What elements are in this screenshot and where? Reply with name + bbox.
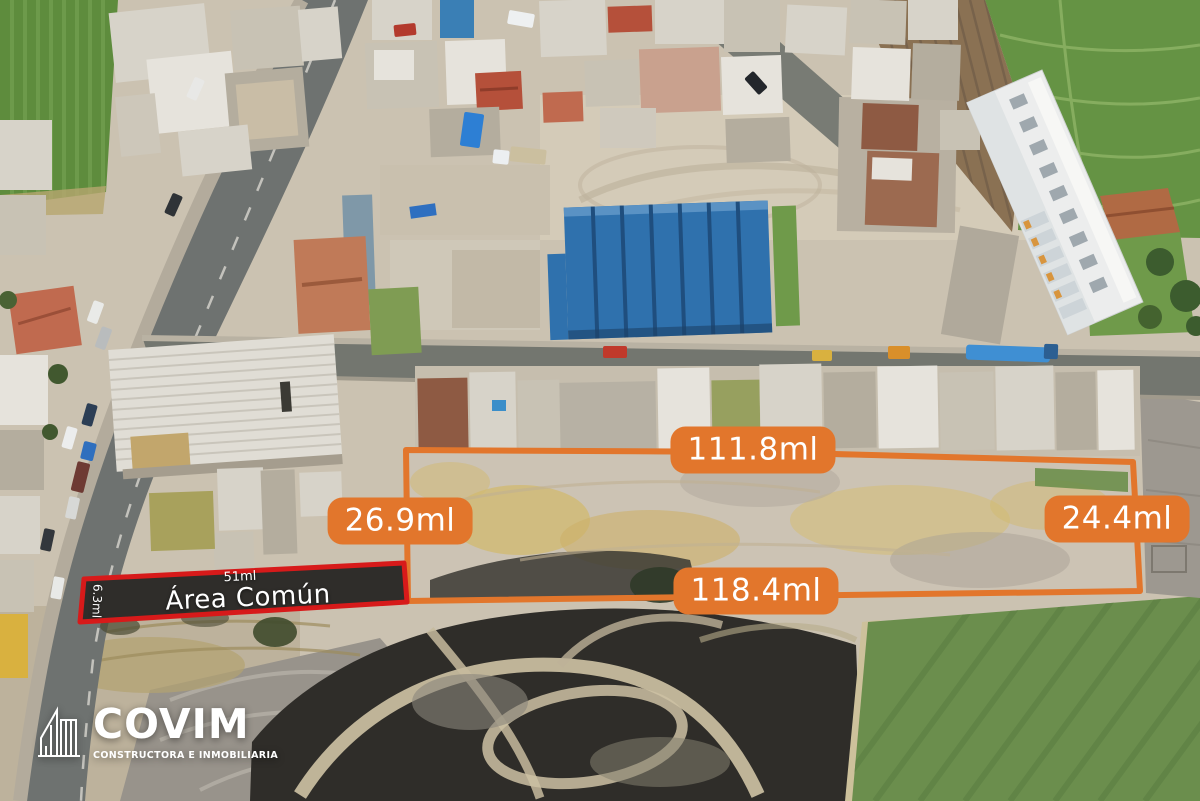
measurement-label-left: 26.9ml	[328, 498, 473, 545]
company-name: COVIM	[93, 704, 278, 745]
annotation-lines	[0, 0, 1200, 801]
common-area-width-label: 6.3ml	[89, 584, 104, 619]
measurement-label-right: 24.4ml	[1045, 496, 1190, 543]
aerial-photo-stage: 111.8ml 26.9ml 24.4ml 118.4ml 51ml Área …	[0, 0, 1200, 801]
covim-logo-icon	[36, 704, 82, 764]
measurement-label-bottom: 118.4ml	[673, 568, 838, 615]
company-tagline: CONSTRUCTORA E INMOBILIARIA	[93, 750, 278, 761]
measurement-label-top: 111.8ml	[670, 427, 835, 474]
covim-logo: COVIM CONSTRUCTORA E INMOBILIARIA	[36, 704, 278, 764]
